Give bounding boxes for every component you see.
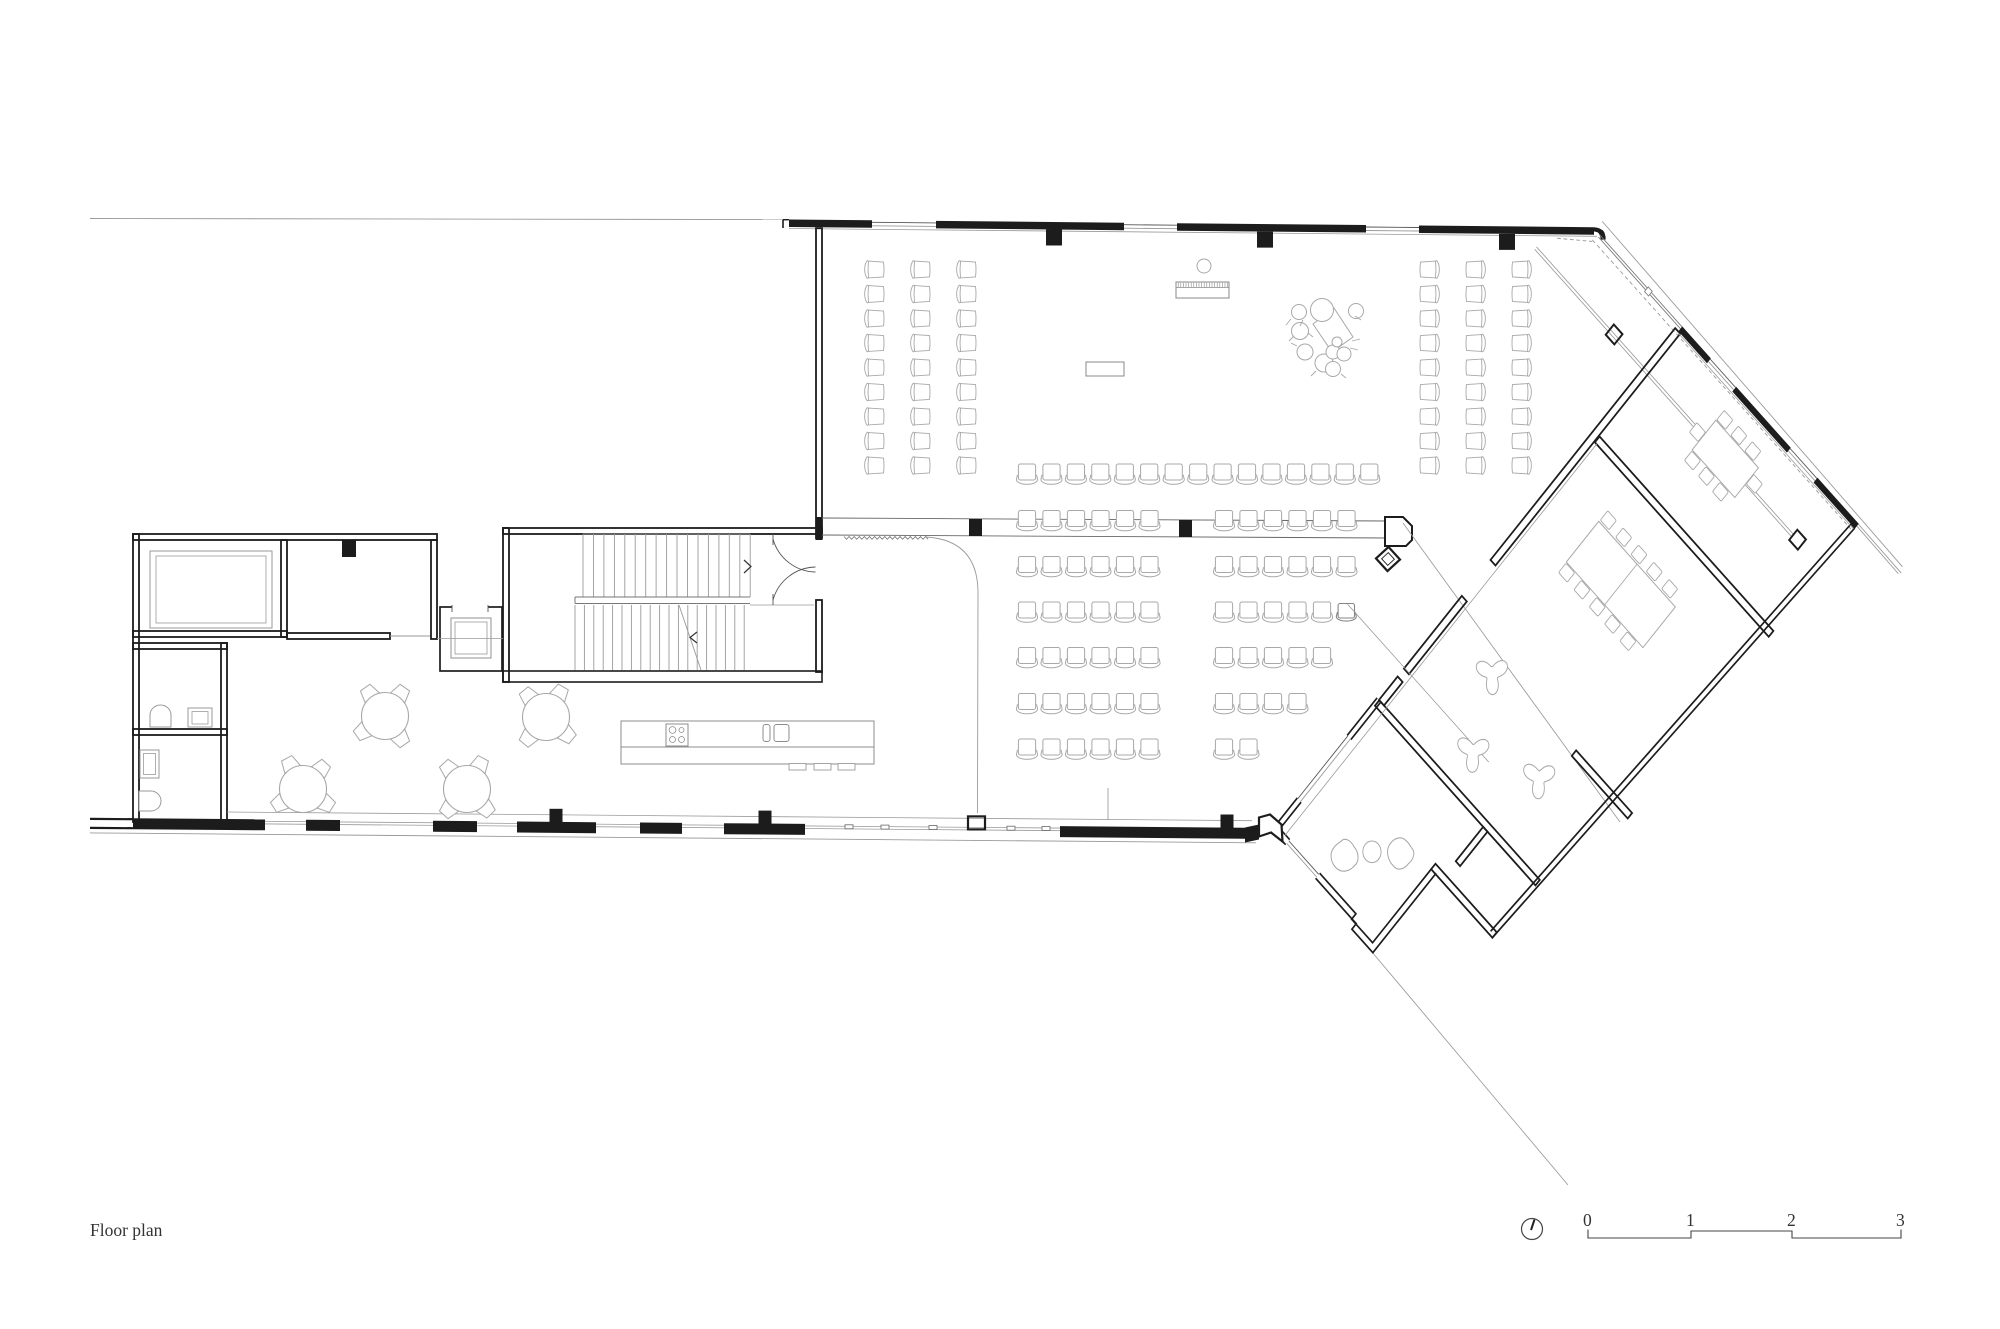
svg-text:0: 0 (1583, 1210, 1592, 1230)
svg-text:2: 2 (1787, 1210, 1796, 1230)
svg-text:1: 1 (1686, 1210, 1695, 1230)
svg-text:3: 3 (1896, 1210, 1905, 1230)
svg-text:Floor plan: Floor plan (90, 1220, 163, 1240)
